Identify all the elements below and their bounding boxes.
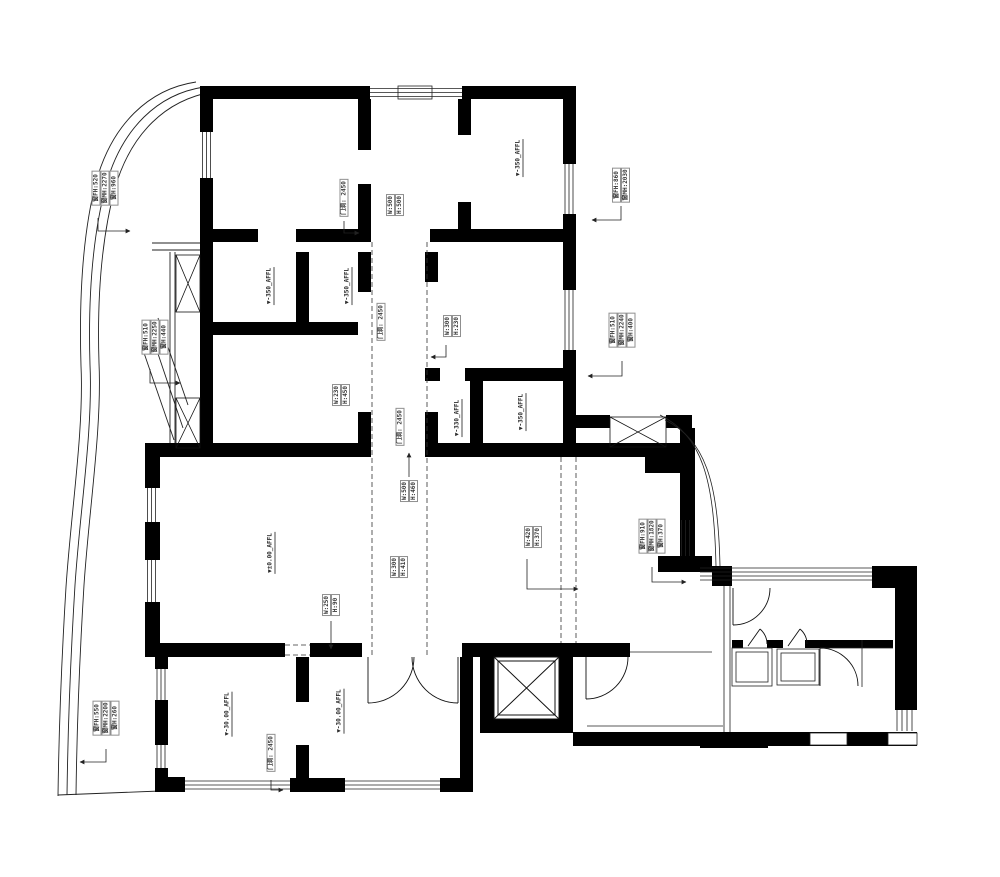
window-tag-line: 窗MH:2200 xyxy=(102,700,111,735)
door-opening-text: 门洞: 2450 xyxy=(377,303,386,341)
door-opening-text: 门洞: 2450 xyxy=(267,734,276,772)
door-opening-tag-bottom: 门洞: 2450 xyxy=(267,734,276,772)
level-marker-mid-left-2: ▼-350_AFFL xyxy=(344,267,353,305)
level-marker-mid-right-2: ▼-350_AFFL xyxy=(518,393,527,431)
window-tag-top-left: 窗FH:520 窗MH:2270 窗H:960 xyxy=(92,170,119,205)
window-tag-line: 窗FH:510 xyxy=(142,319,151,354)
niche-dim: H:500 xyxy=(395,194,404,216)
floor-plan-canvas: 窗FH:520 窗MH:2270 窗H:960 窗FH:860 窗MH:2030… xyxy=(0,0,1000,877)
window-tag-line: 窗MH:1820 xyxy=(648,518,657,553)
niche-dim: W:420 xyxy=(524,526,533,548)
windows-layer xyxy=(148,89,873,790)
niche-tag-hall-lower: W:300 H:410 xyxy=(390,556,408,578)
niche-dim: H:450 xyxy=(341,384,350,406)
window-tag-bottom-left: 窗FH:550 窗MH:2200 窗H:260 xyxy=(93,700,120,735)
window-tag-right-mid: 窗FH:510 窗MH:2240 窗H:400 xyxy=(609,312,636,347)
level-marker-mid-left-1: ▼-350_AFFL xyxy=(266,267,275,305)
niche-dim: W:500 xyxy=(386,194,395,216)
niche-dim: W:250 xyxy=(322,594,331,616)
door-opening-tag-top: 门洞: 2450 xyxy=(340,179,349,217)
window-tag-line: 窗H:370 xyxy=(657,518,666,553)
niche-tag-hall-left: W:230 H:450 xyxy=(332,384,350,406)
level-marker-living: ▼±0.00_AFFL xyxy=(267,532,276,574)
niche-dim: H:90 xyxy=(331,594,340,616)
window-tag-top-right: 窗FH:860 窗MH:2030 xyxy=(612,167,630,202)
niche-dim: H:230 xyxy=(452,315,461,337)
door-opening-tag-hall-lower: 门洞: 2450 xyxy=(396,408,405,446)
niche-tag-living: W:250 H:90 xyxy=(322,594,340,616)
window-tag-line: 窗MH:2030 xyxy=(621,167,630,202)
window-tag-line: 窗FH:910 xyxy=(639,518,648,553)
window-tag-line: 窗FH:520 xyxy=(92,170,101,205)
leader-lines xyxy=(80,206,686,790)
niche-dim: H:370 xyxy=(533,526,542,548)
window-tag-line: 窗H:260 xyxy=(111,700,120,735)
window-tag-line: 窗MH:2240 xyxy=(618,312,627,347)
window-tag-line: 窗FH:510 xyxy=(609,312,618,347)
level-marker-bottom-left-2: ▼-30.00_AFFL xyxy=(336,688,345,733)
niche-tag-right-upper: W:300 H:230 xyxy=(443,315,461,337)
niche-tag-hall-center: W:500 H:460 xyxy=(400,480,418,502)
level-marker-top-right: ▼-350_AFFL xyxy=(515,139,524,177)
niche-tag-dining: W:420 H:370 xyxy=(524,526,542,548)
door-opening-tag-hall-upper: 门洞: 2450 xyxy=(377,303,386,341)
door-opening-text: 门洞: 2450 xyxy=(396,408,405,446)
door-opening-text: 门洞: 2450 xyxy=(340,179,349,217)
window-tag-line: 窗FH:550 xyxy=(93,700,102,735)
niche-dim: W:300 xyxy=(443,315,452,337)
window-tag-line: 窗FH:860 xyxy=(612,167,621,202)
elevator-shaft xyxy=(494,657,559,719)
niche-dim: W:300 xyxy=(390,556,399,578)
niche-dim: H:460 xyxy=(409,480,418,502)
window-tag-left-mid: 窗FH:510 窗MH:2250 窗H:440 xyxy=(142,319,169,354)
fixtures-layer xyxy=(587,415,912,731)
window-tag-line: 窗MH:2250 xyxy=(151,319,160,354)
level-marker-bottom-left-1: ▼-30.00_AFFL xyxy=(224,691,233,736)
niche-dim: W:500 xyxy=(400,480,409,502)
window-tag-line: 窗MH:2270 xyxy=(101,170,110,205)
niche-dim: W:230 xyxy=(332,384,341,406)
niche-dim: H:410 xyxy=(399,556,408,578)
window-tag-line: 窗H:960 xyxy=(110,170,119,205)
floor-plan-drawing xyxy=(0,0,1000,877)
window-tag-line: 窗H:400 xyxy=(627,312,636,347)
window-tag-line: 窗H:440 xyxy=(160,319,169,354)
site-boundary-curves xyxy=(58,82,212,796)
niche-tag-top: W:500 H:500 xyxy=(386,194,404,216)
walls-layer xyxy=(145,86,917,792)
window-tag-right-low: 窗FH:910 窗MH:1820 窗H:370 xyxy=(639,518,666,553)
level-marker-mid-right-1: ▼-330_AFFL xyxy=(454,399,463,437)
